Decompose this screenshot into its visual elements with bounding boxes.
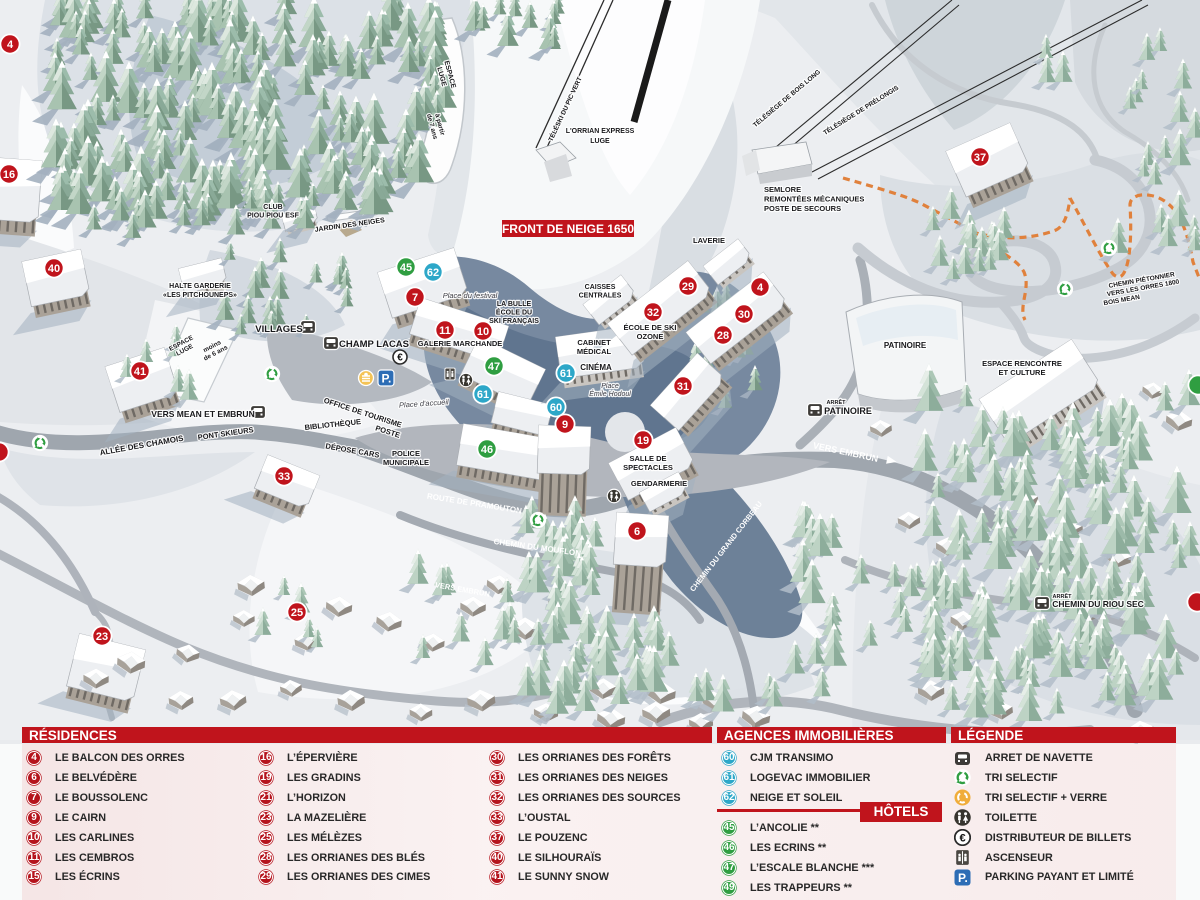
svg-text:CINÉMA: CINÉMA — [580, 363, 612, 372]
svg-text:VILLAGES: VILLAGES — [255, 324, 303, 335]
svg-text:28: 28 — [717, 330, 729, 342]
svg-text:P.: P. — [382, 372, 392, 386]
svg-text:SALLE DESPECTACLES: SALLE DESPECTACLES — [623, 454, 673, 472]
svg-text:40: 40 — [48, 263, 60, 275]
svg-text:ARRÊT: ARRÊT — [1053, 592, 1073, 600]
svg-text:ARRÊT: ARRÊT — [827, 398, 847, 406]
svg-text:62: 62 — [427, 267, 439, 279]
svg-text:LAVERIE: LAVERIE — [693, 236, 725, 245]
svg-text:7: 7 — [412, 292, 418, 304]
svg-text:11: 11 — [439, 325, 451, 337]
svg-text:CHEMIN DU RIOU SEC: CHEMIN DU RIOU SEC — [1052, 599, 1144, 609]
svg-text:33: 33 — [278, 471, 290, 483]
svg-text:10: 10 — [477, 326, 489, 338]
svg-text:VERS MEAN ET EMBRUN: VERS MEAN ET EMBRUN — [151, 409, 254, 419]
svg-text:41: 41 — [134, 366, 146, 378]
svg-text:€: € — [397, 353, 403, 364]
svg-text:37: 37 — [974, 152, 986, 164]
svg-text:CHAMP LACAS: CHAMP LACAS — [339, 339, 409, 350]
svg-text:€: € — [959, 833, 965, 845]
svg-text:61: 61 — [477, 389, 489, 401]
svg-text:46: 46 — [481, 444, 493, 456]
svg-text:GENDARMERIE: GENDARMERIE — [631, 479, 687, 488]
svg-text:45: 45 — [400, 262, 412, 274]
svg-text:23: 23 — [96, 631, 108, 643]
svg-text:Place du festival: Place du festival — [443, 291, 498, 300]
svg-text:32: 32 — [647, 307, 659, 319]
svg-text:9: 9 — [562, 419, 568, 431]
svg-text:31: 31 — [677, 381, 689, 393]
svg-text:4: 4 — [7, 39, 14, 51]
svg-text:FRONT DE NEIGE 1650: FRONT DE NEIGE 1650 — [502, 222, 634, 236]
svg-text:60: 60 — [550, 402, 562, 414]
svg-text:CABINETMÉDICAL: CABINETMÉDICAL — [577, 338, 612, 356]
svg-text:P.: P. — [958, 871, 968, 885]
svg-text:30: 30 — [738, 309, 750, 321]
svg-text:CAISSESCENTRALES: CAISSESCENTRALES — [579, 284, 622, 300]
svg-text:4: 4 — [757, 282, 764, 294]
svg-text:6: 6 — [634, 526, 640, 538]
svg-text:19: 19 — [637, 435, 649, 447]
svg-text:47: 47 — [488, 361, 500, 373]
svg-text:L'ORRIAN EXPRESS: L'ORRIAN EXPRESS — [566, 128, 635, 135]
svg-text:16: 16 — [3, 169, 15, 181]
svg-text:LUGE: LUGE — [590, 138, 610, 145]
svg-text:61: 61 — [560, 368, 572, 380]
svg-text:29: 29 — [682, 281, 694, 293]
svg-text:25: 25 — [291, 607, 303, 619]
svg-text:PATINOIRE: PATINOIRE — [824, 406, 872, 416]
svg-text:PATINOIRE: PATINOIRE — [884, 341, 927, 350]
svg-text:GALERIE MARCHANDE: GALERIE MARCHANDE — [418, 339, 503, 348]
